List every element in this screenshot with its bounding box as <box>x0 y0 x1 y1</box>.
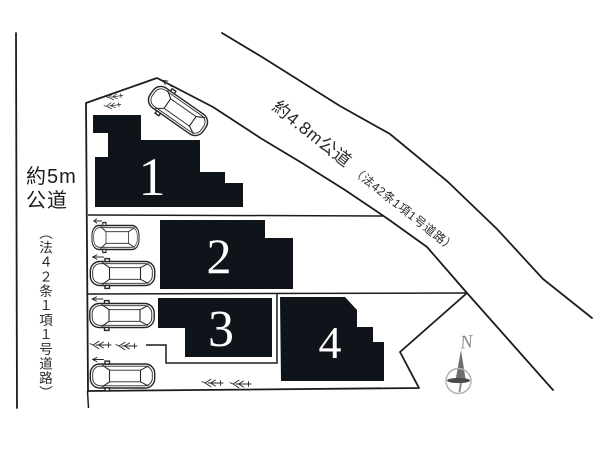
left-road-label-line2: 公道 <box>26 190 77 214</box>
shrub-icon <box>104 101 121 109</box>
lot3-number: 3 <box>208 301 234 358</box>
left-road-label: 約5m 公道 <box>26 166 77 213</box>
site-plan: 1 2 3 4 N 約5m 公道 （法４２条１項１号道路） 約4.8 <box>0 0 600 450</box>
left-road-label-line1: 約5m <box>26 166 77 190</box>
left-road-law-note: （法４２条１項１号道路） <box>34 226 54 396</box>
parcel-left-edge-extension <box>88 391 89 408</box>
lot1-lot2-divider <box>88 215 384 216</box>
car-icon <box>143 77 215 141</box>
lot4-number: 4 <box>319 317 342 368</box>
compass: N <box>446 331 475 393</box>
car-icon <box>90 255 154 289</box>
compass-needle-tail <box>460 383 462 392</box>
shrub-icon <box>116 342 137 350</box>
shrub-icon <box>90 341 111 349</box>
lot1-number: 1 <box>139 147 166 207</box>
left-road-edge-line <box>16 33 17 408</box>
car-icon <box>90 357 154 391</box>
compass-crossbar <box>447 378 470 383</box>
car-icon <box>90 297 154 331</box>
shrub-icon <box>202 379 223 387</box>
shrub-icon <box>230 380 251 388</box>
diagonal-road-lower-edge-continuation <box>467 293 553 390</box>
car-icon <box>92 219 139 253</box>
lot2-lot3-divider <box>88 293 467 294</box>
lot1-building-footprint <box>93 115 243 207</box>
lot2-number: 2 <box>207 228 232 284</box>
site-plan-drawing: 1 2 3 4 N <box>0 0 600 450</box>
compass-north-label: N <box>458 331 475 353</box>
